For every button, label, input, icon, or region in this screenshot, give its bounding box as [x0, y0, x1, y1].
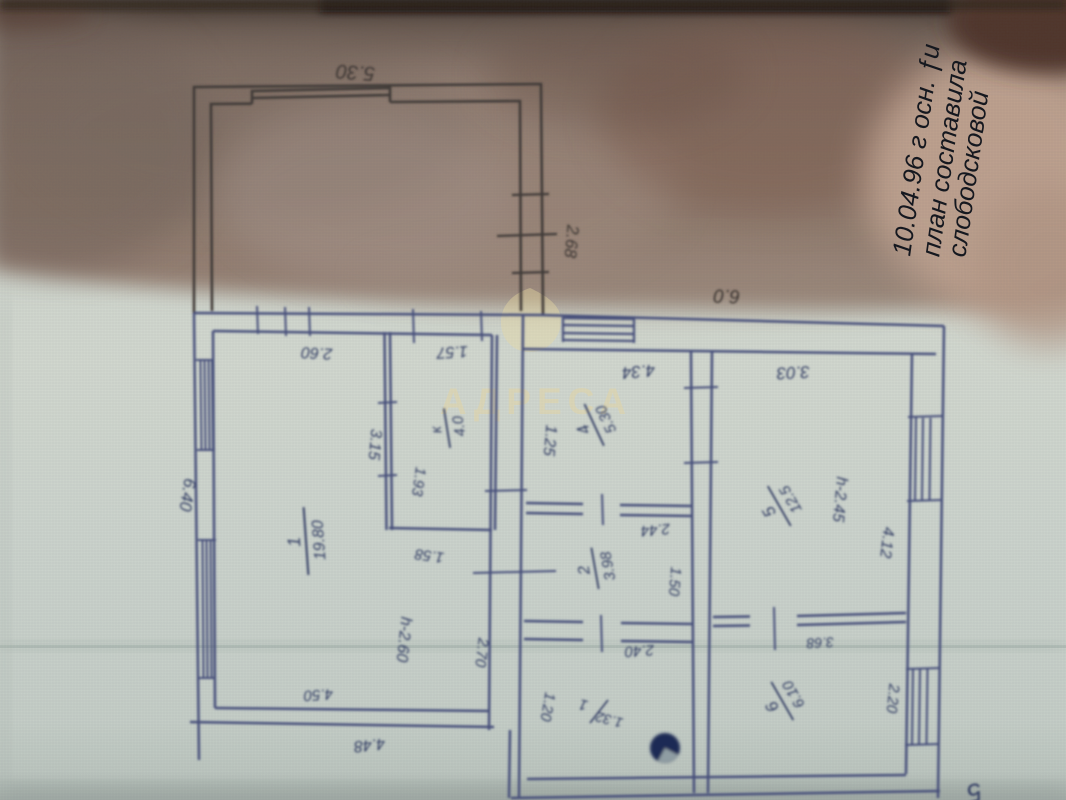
- svg-text:6.0: 6.0: [713, 285, 741, 307]
- svg-text:3.68: 3.68: [806, 634, 834, 651]
- svg-text:4.34: 4.34: [621, 361, 656, 383]
- svg-text:4.50: 4.50: [303, 685, 334, 704]
- svg-text:2.60: 2.60: [301, 343, 334, 362]
- svg-text:1.57: 1.57: [435, 342, 468, 361]
- svg-text:3.03: 3.03: [776, 362, 811, 383]
- svg-text:1.25: 1.25: [540, 424, 560, 457]
- svg-text:2.20: 2.20: [882, 682, 902, 714]
- svg-text:1.50: 1.50: [665, 566, 685, 597]
- svg-text:4.48: 4.48: [353, 734, 386, 754]
- svg-text:3.15: 3.15: [365, 428, 385, 461]
- svg-text:19.80: 19.80: [310, 519, 330, 560]
- svg-text:5.30: 5.30: [335, 60, 375, 85]
- svg-text:1: 1: [284, 536, 305, 547]
- svg-text:4.0: 4.0: [449, 414, 469, 438]
- svg-text:2.68: 2.68: [561, 223, 583, 259]
- svg-text:2.44: 2.44: [640, 520, 672, 540]
- svg-text:2.40: 2.40: [624, 641, 656, 660]
